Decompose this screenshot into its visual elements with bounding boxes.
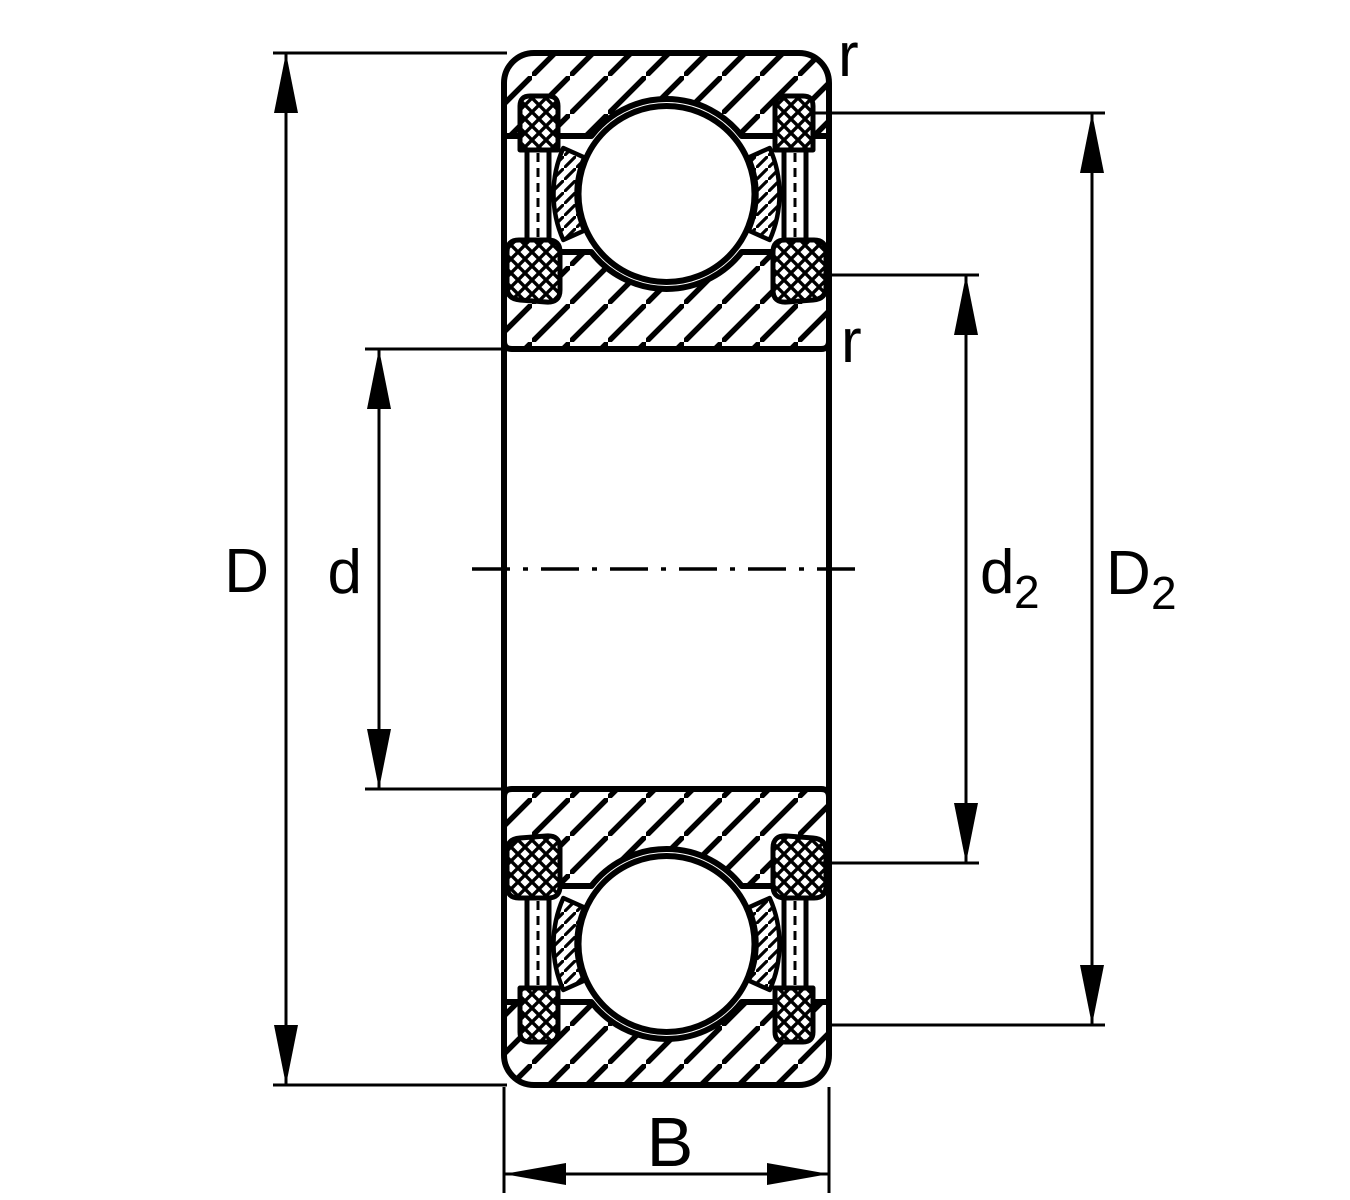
label-outer-recess-diameter-D2: D2 xyxy=(1106,539,1177,619)
arrowhead-down-icon xyxy=(954,803,978,863)
arrowhead-up-icon xyxy=(367,349,391,409)
seal-anchor xyxy=(775,96,813,150)
chamfer-labels: r r xyxy=(838,21,862,376)
arrowhead-right-icon xyxy=(767,1163,829,1185)
arrowhead-up-icon xyxy=(1080,113,1104,173)
seal-lip xyxy=(507,240,560,302)
label-inner-recess-diameter-d2: d2 xyxy=(980,538,1040,618)
seal-anchor xyxy=(520,96,558,150)
label-d2-main: d xyxy=(980,538,1014,607)
label-D2-subscript: 2 xyxy=(1151,567,1177,619)
seal-anchor xyxy=(775,988,813,1042)
arrowhead-down-icon xyxy=(274,1025,298,1085)
arrowhead-up-icon xyxy=(274,53,298,113)
ball xyxy=(579,106,755,282)
label-width-B: B xyxy=(647,1103,694,1181)
seal-lip xyxy=(773,836,826,898)
seal-lip xyxy=(507,836,560,898)
label-chamfer-radius-inner-r: r xyxy=(841,307,862,376)
label-chamfer-radius-outer-r: r xyxy=(838,21,859,90)
seal-anchor xyxy=(520,988,558,1042)
bearing-technical-drawing: D d d2 D2 B xyxy=(0,0,1350,1200)
arrowhead-down-icon xyxy=(367,729,391,789)
ball xyxy=(579,856,755,1032)
dimension-outer-diameter-D: D xyxy=(224,53,507,1085)
label-outer-diameter-D: D xyxy=(224,537,269,606)
dimension-width-B: B xyxy=(504,1087,829,1193)
label-d2-subscript: 2 xyxy=(1014,566,1040,618)
label-D2-main: D xyxy=(1106,539,1151,608)
drawing-canvas: D d d2 D2 B xyxy=(0,0,1350,1200)
seal-lip xyxy=(773,240,826,302)
arrowhead-left-icon xyxy=(504,1163,566,1185)
arrowhead-down-icon xyxy=(1080,965,1104,1025)
label-bore-diameter-d: d xyxy=(328,538,362,607)
arrowhead-up-icon xyxy=(954,275,978,335)
